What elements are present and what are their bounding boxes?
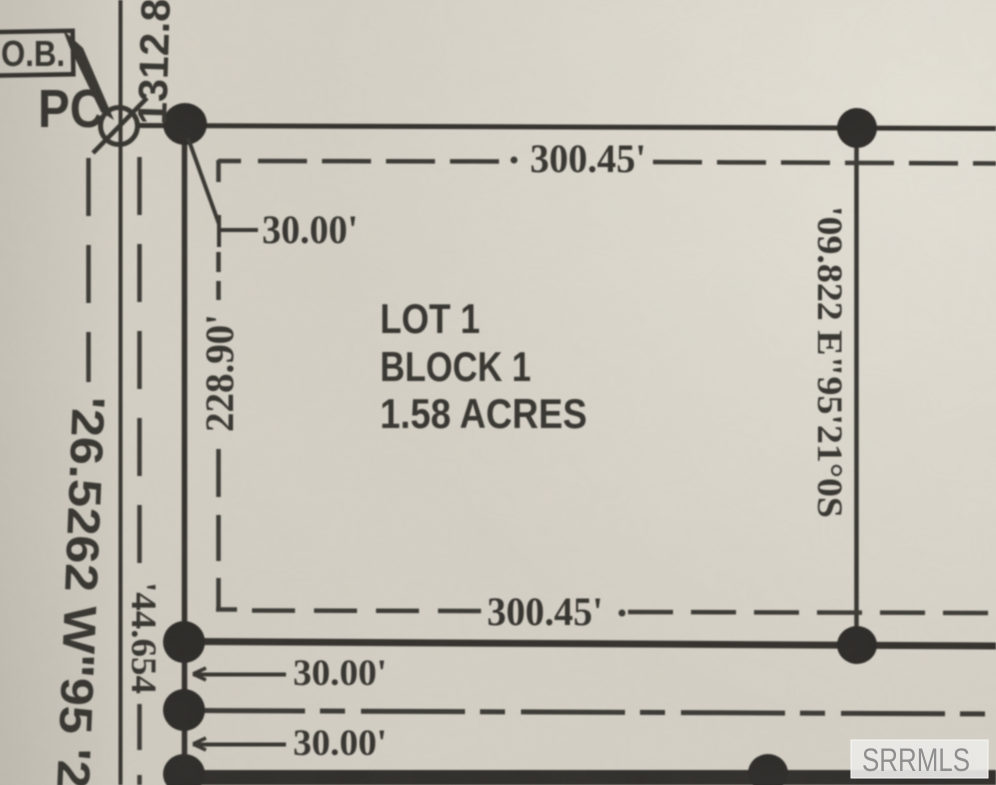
svg-text:SRRMLS: SRRMLS bbox=[862, 742, 970, 778]
